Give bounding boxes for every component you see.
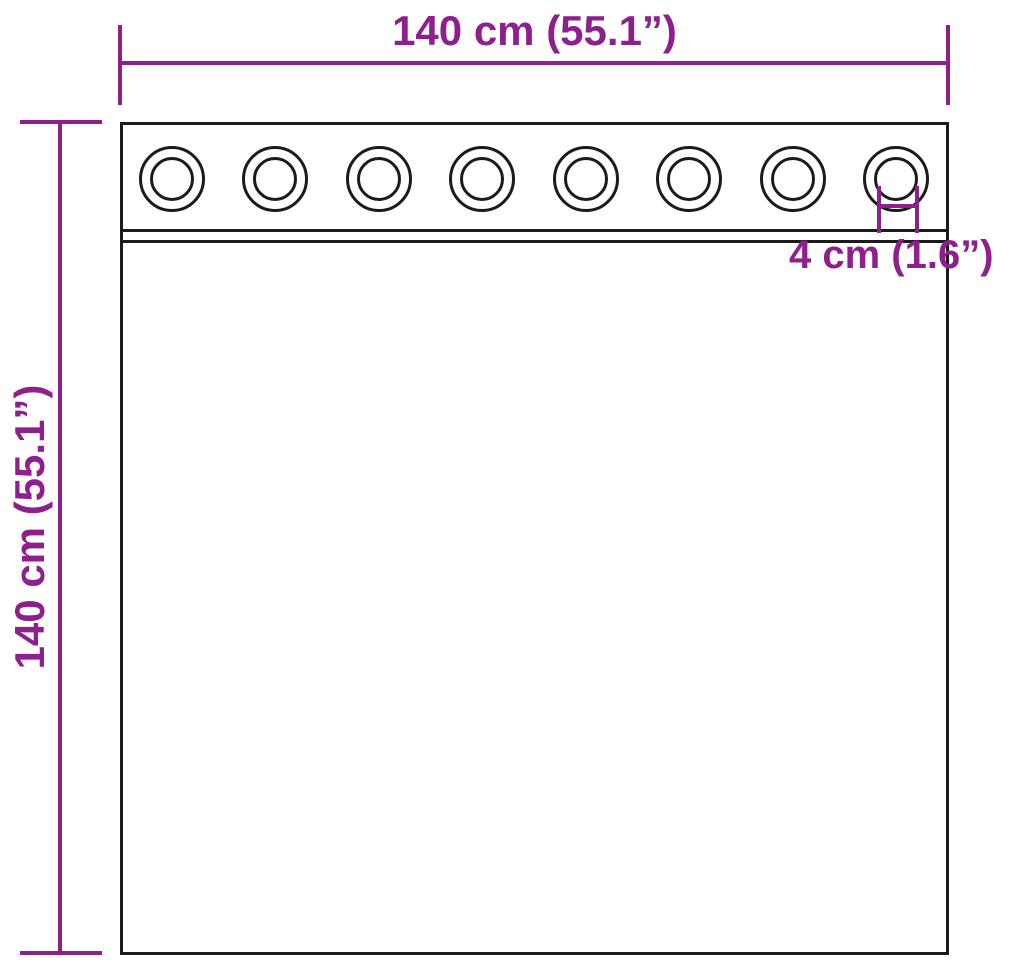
grommet-dimension-tick-right [915,186,919,233]
grommet [139,146,205,212]
grommet [863,146,929,212]
height-dimension-end-tick-bottom [20,951,102,955]
grommet-inner-ring [667,157,711,201]
height-dimension-line [58,122,62,954]
grommet-dimension-tick-left [877,186,881,233]
height-dimension-label: 140 cm (55.1”) [7,385,53,670]
header-band-seam-line-upper [123,229,946,232]
grommet [242,146,308,212]
curtain-dimension-diagram: 140 cm (55.1”) 140 cm (55.1”) 4 cm (1.6”… [0,0,1020,979]
grommet [449,146,515,212]
grommet-dimension-line [877,204,919,208]
grommet-inner-ring [357,157,401,201]
grommet-dimension-label: 4 cm (1.6”) [789,233,994,277]
grommet-inner-ring [460,157,504,201]
grommet-inner-ring [771,157,815,201]
width-dimension-line [120,61,949,65]
grommet [656,146,722,212]
grommet [553,146,619,212]
grommet-inner-ring [564,157,608,201]
grommet-inner-ring [253,157,297,201]
grommet-inner-ring [150,157,194,201]
height-dimension-end-tick-top [20,120,102,124]
width-dimension-label: 140 cm (55.1”) [120,8,949,54]
grommet [346,146,412,212]
grommet [760,146,826,212]
